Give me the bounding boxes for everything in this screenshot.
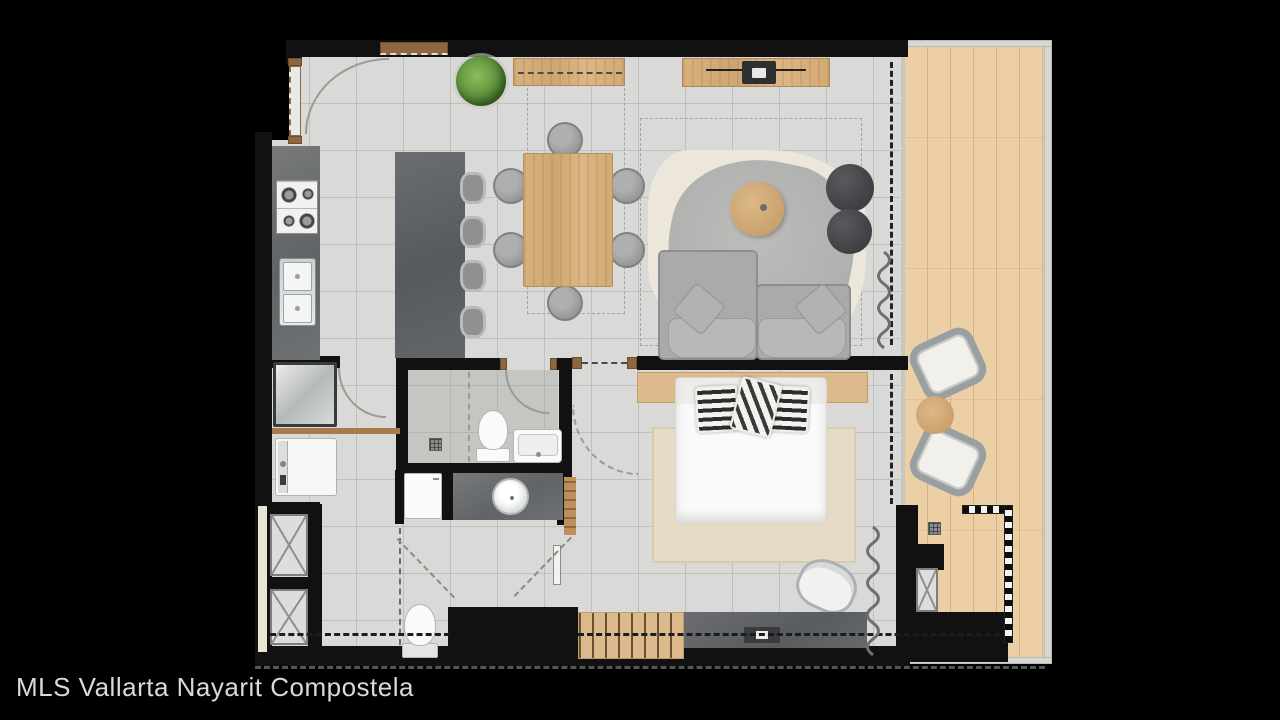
balcony-drain — [928, 522, 941, 535]
refrigerator — [273, 362, 337, 427]
console-dash — [518, 72, 622, 74]
hall-guide-h — [270, 633, 450, 636]
kitchen-island — [395, 152, 465, 358]
entry-jamb-bottom — [288, 136, 302, 144]
dining-chair-right-1 — [609, 168, 645, 204]
shower2 — [404, 473, 442, 519]
sofa-cushion-2 — [758, 318, 846, 358]
wall-shower2-right — [442, 470, 453, 520]
planter-grille-v — [1004, 505, 1013, 643]
vanity-basin-drain — [510, 496, 514, 500]
coffee-table-dot — [760, 204, 767, 211]
shower-drain — [429, 438, 442, 451]
washer-knob — [280, 461, 286, 467]
wall-bath2-left — [395, 470, 404, 524]
balcony-door-bedroom — [890, 374, 893, 504]
bar-stool-2 — [460, 216, 486, 248]
kitchen-sink — [279, 258, 316, 326]
vanity-wood-slats — [564, 477, 576, 535]
bar-stool-3 — [460, 260, 486, 292]
potted-plant — [456, 56, 506, 106]
planter-grille-h — [962, 505, 1010, 514]
bedroom-door-jamb-left — [572, 357, 582, 369]
sink-drain-dot-1 — [295, 274, 300, 279]
toilet2-bowl — [404, 604, 436, 646]
bath1-wall-left — [396, 358, 408, 475]
closet-slide-line — [578, 633, 1000, 636]
bath1-jamb-a — [500, 358, 507, 370]
washer-display — [280, 475, 286, 485]
toilet1-tank — [476, 448, 510, 462]
sofa-cushion-1 — [668, 318, 756, 358]
wall-closet-right — [308, 504, 322, 654]
storage-closet-2 — [270, 589, 308, 645]
balcony-rail-right — [1044, 42, 1052, 664]
dining-table — [523, 153, 613, 287]
bar-stool-1 — [460, 172, 486, 204]
hall-guide-v — [399, 528, 401, 645]
washer — [275, 438, 337, 496]
balcony-door-living — [890, 62, 893, 345]
balcony-table — [916, 396, 954, 434]
storage-closet-1 — [270, 514, 308, 576]
shower-glass-partition — [468, 372, 470, 462]
bath1-sink — [513, 429, 562, 463]
bedroom-door-open-line — [582, 362, 627, 364]
watermark-caption: MLS Vallarta Nayarit Compostela — [16, 672, 414, 703]
wall-balcony-corner-b — [896, 612, 1008, 662]
balcony-storage-closet — [916, 568, 938, 612]
vanity-basin — [492, 478, 529, 515]
bath1-wall-top-a — [396, 358, 500, 370]
pouf-1 — [826, 164, 874, 212]
bath1-sink-faucet — [536, 452, 541, 457]
wall-top-service-door — [380, 42, 448, 55]
entry-console — [513, 58, 625, 86]
hall-threshold — [272, 428, 400, 434]
pouf-2 — [827, 209, 872, 254]
kitchen-counter — [272, 146, 320, 360]
coffee-table — [730, 182, 784, 236]
tv-detail — [752, 68, 766, 78]
washer-control-panel — [278, 441, 288, 493]
bath1-jamb-b — [550, 358, 557, 370]
toilet1-bowl — [478, 410, 508, 450]
property-dash-line — [255, 666, 1045, 669]
balcony-rail-top — [904, 40, 1052, 47]
stove — [276, 180, 318, 234]
wall-balcony-notch — [918, 544, 944, 570]
entry-door — [289, 66, 301, 136]
bar-stool-4 — [460, 306, 486, 338]
shower2-handle — [433, 478, 439, 480]
wall-closet-block — [448, 607, 578, 652]
floor-plan-image: MLS Vallarta Nayarit Compostela — [0, 0, 1280, 720]
tv — [742, 61, 776, 84]
entry-jamb-top — [288, 58, 302, 66]
exterior-finish-strip — [258, 506, 267, 652]
sink-drain-dot-2 — [295, 306, 300, 311]
bedroom-door-jamb-right — [627, 357, 637, 369]
dining-chair-bottom — [547, 285, 583, 321]
dining-chair-right-2 — [609, 232, 645, 268]
